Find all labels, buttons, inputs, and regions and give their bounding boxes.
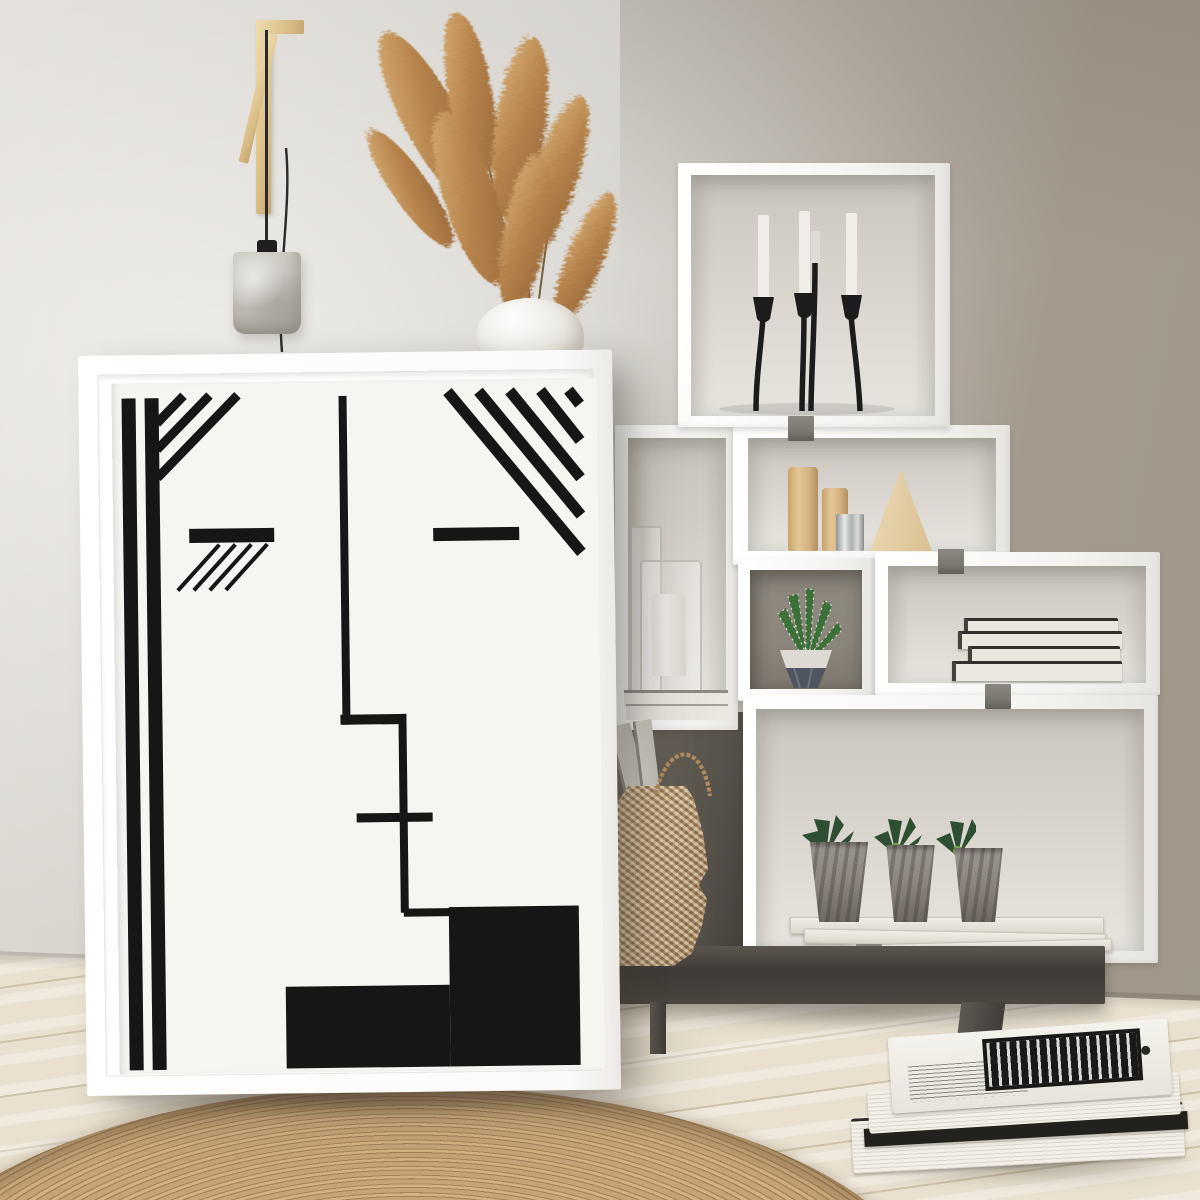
poster-paper [111, 378, 604, 1075]
cube-opening [628, 438, 726, 718]
haworthia-plant [750, 570, 862, 689]
poster-frame [78, 349, 621, 1095]
woven-basket [606, 786, 708, 966]
cube-opening [756, 709, 1144, 951]
shelf-cube-books [875, 552, 1160, 695]
shelf-cube-large [743, 695, 1158, 963]
lamp-cord [265, 30, 268, 252]
shelf-cube-wood-objects [733, 425, 1010, 565]
cube-opening [691, 175, 935, 416]
shelf-cube-candles [678, 163, 950, 427]
shelf-cube-hurricane [615, 425, 738, 730]
pillar-candle [652, 594, 686, 676]
candelabra [691, 175, 935, 416]
wall-bracket-arm [256, 20, 304, 34]
interior-scene [0, 0, 1200, 1200]
cube-opening [888, 566, 1146, 683]
bench-leg-left [650, 1002, 666, 1054]
cube-opening-grey [750, 570, 862, 689]
book [952, 661, 1122, 681]
rustic-pot [806, 842, 872, 922]
floor-book-stack [846, 1026, 1200, 1186]
lamp-shade-concrete [233, 252, 301, 334]
rustic-pot [883, 845, 938, 922]
eyelash-hatching [177, 544, 268, 590]
steel-cylinder [836, 514, 864, 551]
shelf-clip [788, 416, 814, 441]
cover-logo-dot [1141, 1046, 1151, 1056]
shelf-clip [938, 549, 964, 574]
book [626, 704, 728, 720]
shelf-clip [985, 684, 1011, 709]
candelabra-arms [753, 293, 862, 323]
shelf-cube-succulent [738, 558, 875, 701]
cover-photo-panel [982, 1028, 1143, 1091]
plywood-triangle [870, 469, 932, 551]
pampas-plumes [355, 8, 628, 329]
wood-cylinder-tall [788, 467, 818, 551]
basket-handle [648, 736, 720, 800]
cube-opening [748, 438, 996, 551]
rustic-pot [951, 848, 1006, 922]
abstract-face-artwork [111, 378, 604, 1075]
corner-stripes-left [156, 395, 238, 478]
